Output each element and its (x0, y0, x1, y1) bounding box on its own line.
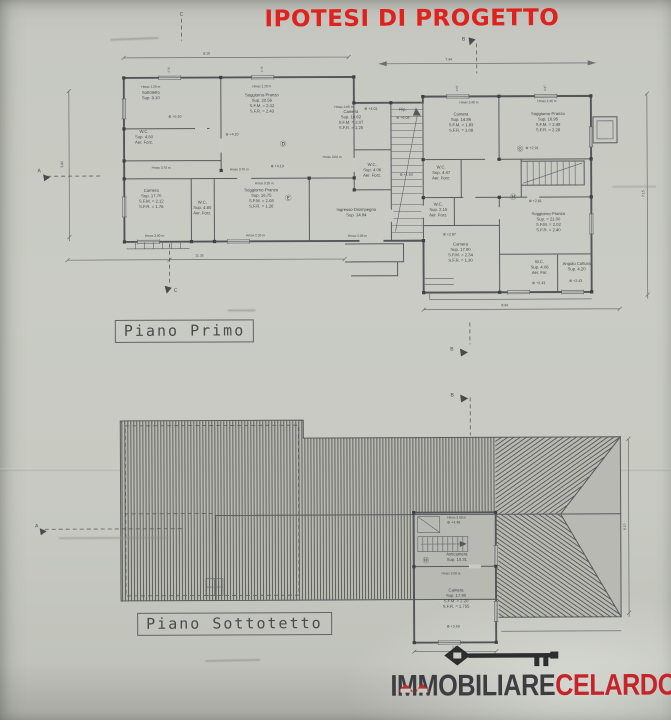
house-roof-icon (398, 684, 413, 692)
wall-junction (353, 176, 356, 179)
wall-junction (498, 196, 501, 199)
unit-ref: Ⓓ (280, 140, 287, 148)
dim-label: 2.70 (167, 67, 171, 73)
dim-label: 8.10 (203, 52, 210, 56)
plan-label-piano-sottotetto: Piano Sottotetto (137, 612, 332, 636)
dim-label: 8.94 (501, 303, 508, 307)
hmax-label: Hmax 3.00 m (145, 234, 164, 238)
hmax-label: Hmax 2.38 m (348, 234, 367, 238)
key-icon (442, 643, 562, 670)
hmax-label: Hmax 3.25 m (255, 181, 274, 185)
unit-ref: Ⓔ (285, 194, 292, 202)
scanned-floorplan-photo: IPOTESI DI PROGETTO (0, 0, 671, 720)
dim-label: 6.10 (623, 523, 627, 530)
room-label: CameraSup. 17.70S.F.M. = 2.12S.F.R. = 1.… (139, 188, 165, 209)
wall-junction (498, 158, 501, 161)
room-label: Soggiorno-PranzoSup. 20.56S.F.M. = 2.02S… (245, 92, 280, 113)
wall-junction (413, 641, 416, 644)
dim-label: 7.15 (641, 190, 645, 197)
wall-junction (590, 157, 593, 160)
wall-junction (123, 159, 126, 162)
agency-logo: IMMOBILIARECELARDO® (390, 647, 658, 704)
dim-label: 5.80 (60, 161, 64, 168)
level-mark: ⊕ +6.08 (396, 116, 409, 120)
dim-label: 11.35 (195, 254, 203, 258)
dim-label: 2.60 (455, 85, 459, 91)
section-marker: A (35, 523, 39, 529)
wall-junction (589, 94, 592, 97)
wall-junction (190, 240, 193, 243)
wall-junction (220, 169, 223, 172)
level-mark: ⊕ +2.43 (532, 281, 545, 285)
hmax-label: Hmax 1.05 m (141, 85, 160, 89)
wall-junction (213, 240, 216, 243)
room-label: CameraSup. 14.86S.F.M. = 1.83S.F.R. = 1.… (449, 111, 475, 132)
wall-junction (122, 127, 125, 130)
hmax-label: Hmax 3.08 m (447, 515, 466, 519)
room-label: Soggiorno-PranzoSup. = 21.00S.F.M. = 2.0… (531, 211, 566, 232)
section-marker: B (450, 392, 454, 398)
hmax-label: Hmax 3.08 m (441, 571, 460, 575)
wall-junction (219, 76, 222, 79)
hmax-label: Hmax 3.04 m (323, 155, 342, 159)
wall-junction (590, 195, 593, 198)
room-label: W.C.Sup. 4.47Aer. Forz. (432, 164, 451, 180)
level-mark: ⊕ +2.81 (529, 199, 542, 203)
room-label: AnticameraSup. 10.31 (446, 551, 468, 561)
drawing-sheet: IPOTESI DI PROGETTO (0, 0, 671, 721)
wall-junction (422, 291, 425, 294)
wall-junction (422, 158, 425, 161)
room-label: W.C.Sup. 2.15Aer. Forz. (429, 202, 448, 218)
room-label: W.C.Sup. 4.50Aer. Forz. (135, 129, 154, 145)
hmax-label: Hmax 3.70 m (152, 166, 171, 170)
dim-label: 2.10 (260, 66, 264, 72)
hmax-label: Hmax 2.40 m (537, 99, 556, 103)
pencil-scribble (228, 309, 256, 311)
room-label: CameraSup. 16.62S.F.M. = 2.07S.F.R. = 1.… (339, 109, 365, 130)
dim-label: 2.47 (543, 85, 547, 91)
section-marker: A (37, 168, 41, 174)
house-roof-icon (415, 684, 430, 692)
section-marker: B (450, 346, 454, 352)
door-openings (195, 125, 540, 244)
wall-junction (494, 565, 497, 568)
floor-plan-drawing: SottotettoSup. 9.10W.C.Sup. 4.50Aer. For… (0, 0, 671, 721)
wall-junction (123, 177, 126, 180)
level-mark: ⊕ +2.87 (443, 232, 456, 236)
level-mark: ⊕ +4.01 (364, 107, 377, 111)
level-mark: ⊕ +2.91 (526, 146, 539, 150)
level-mark: ⊕ +4.10 (225, 132, 238, 136)
level-mark: ⊕ +2.43 (569, 279, 582, 283)
wall-junction (421, 95, 424, 98)
level-mark: ⊕ +3.69 (447, 624, 460, 628)
plan-label-piano-primo: Piano Primo (115, 319, 254, 343)
room-label: Rip. (399, 107, 406, 112)
level-mark: ⊕ +4.48 (447, 520, 460, 524)
hmax-label: Hmax 3.70 m (230, 167, 249, 171)
section-marker: B (462, 36, 466, 42)
level-mark: ⊕ +4.19 (271, 164, 284, 168)
wall-junction (497, 95, 500, 98)
hmax-label: Hmax 2.40 m (459, 100, 478, 104)
level-mark: ⊕ +1.63 (400, 173, 413, 177)
wall-junction (122, 76, 125, 79)
section-marker: C (180, 12, 184, 18)
wall-junction (412, 511, 415, 514)
wall-junction (590, 290, 593, 293)
room-label: Soggiorno-PranzoSup. 16.95S.F.M. = 2.49S… (531, 111, 566, 132)
room-label: Soggiorno-PranzoSup. 16.75S.F.M. = 2.08S… (244, 187, 279, 208)
room-label: SottotettoSup. 9.10 (142, 90, 161, 100)
dim-label: 7.94 (445, 57, 452, 61)
wall-junction (123, 240, 126, 243)
stairs (391, 108, 424, 233)
hmax-label: Hmax 2.85 m (334, 105, 353, 109)
wall-junction (352, 75, 355, 78)
room-label: Angolo CotturaSup. 4.20 (563, 261, 592, 272)
level-mark: ⊕ +5.10 (168, 115, 181, 119)
agency-logo-text: IMMOBILIARECELARDO® (390, 668, 671, 703)
roof-hatching (120, 419, 621, 619)
stairs (523, 161, 582, 185)
wall-junction (498, 291, 501, 294)
room-label: CameraSup. 17.90S.F.M. = 2.34S.F.R. = 1.… (448, 241, 474, 262)
wall-junction (308, 177, 311, 180)
room-label: W.C.Sup. 4.06Aer. For. (531, 259, 550, 275)
wall-junction (389, 101, 392, 104)
room-label: W.C.Sup. 4.80Aer. Forz. (193, 200, 212, 216)
room-label: W.C.Sup. 4.06Aer. Forz. (363, 162, 382, 178)
section-marker: C (174, 288, 178, 294)
hmax-label: Hmax 2.20 m (252, 84, 271, 88)
room-label: Ingresso-DisimpegnoSup. 14.94 (337, 207, 377, 218)
logo-word-celardo: CELARDO (555, 669, 671, 703)
unit-ref: Ⓗ (510, 193, 517, 201)
pencil-scribble (612, 186, 656, 188)
unit-ref: Ⓖ (517, 145, 524, 153)
wall-junction (353, 188, 356, 191)
wall-junction (422, 196, 425, 199)
wall-junction (494, 511, 497, 514)
hmax-label: Hmax 2.20 m (246, 233, 265, 237)
wall-junction (412, 565, 415, 568)
wall-junction (422, 239, 425, 242)
unit-ref: Ⓗ (423, 557, 430, 565)
